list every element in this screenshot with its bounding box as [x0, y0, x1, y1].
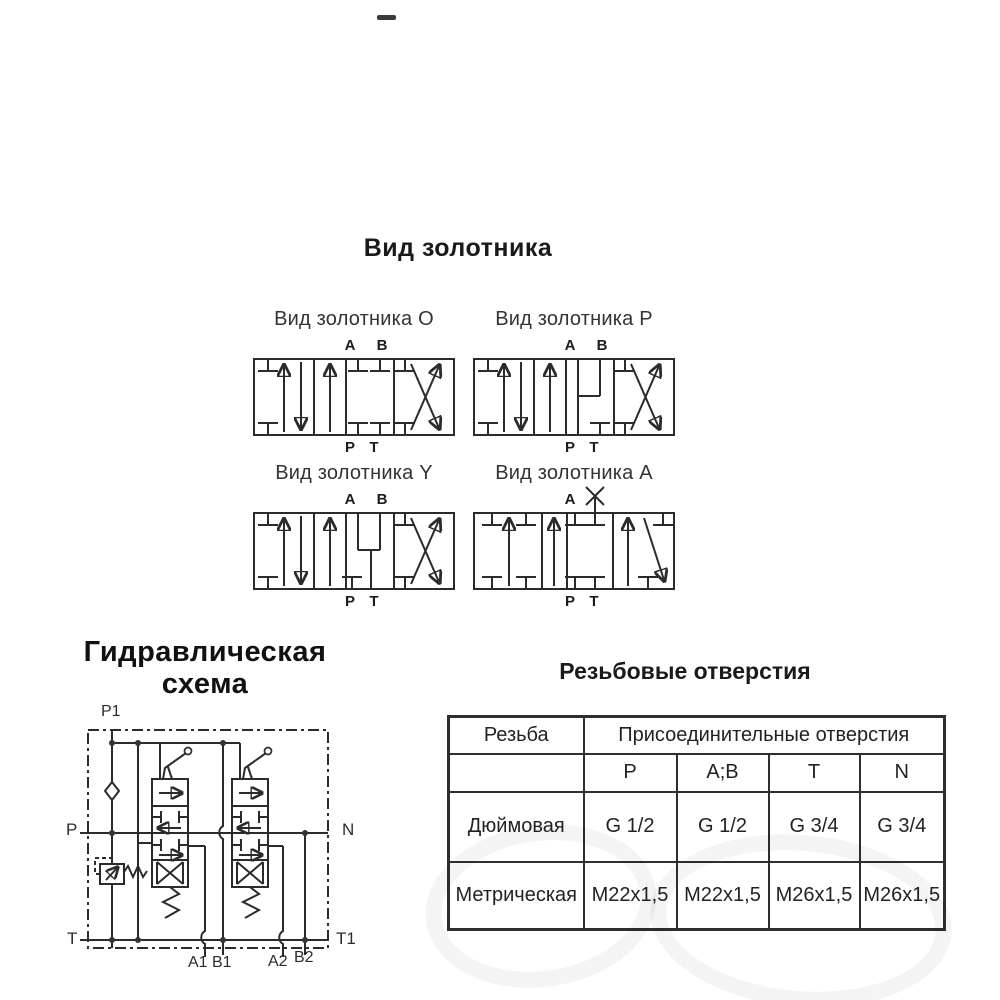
hydraulic-title-line1: Гидравлическая: [84, 636, 327, 668]
port-label-b: B: [597, 337, 608, 354]
spool-title-a: Вид золотника A: [443, 462, 705, 485]
port-label-t1: T1: [336, 929, 356, 949]
spool-block-a: Вид золотника A A P T: [473, 462, 675, 622]
spool-title-p: Вид золотника P: [443, 308, 705, 331]
col-header-thread: Резьба: [449, 717, 584, 754]
b1-line: [219, 743, 223, 955]
port-label-a: A: [345, 337, 356, 354]
y-center-icon: [342, 513, 380, 589]
enclosure-border: [88, 730, 328, 948]
spool-block-o: Вид золотника O A B P T: [253, 308, 455, 468]
table-row: Резьба Присоединительные отверстия: [449, 717, 945, 754]
col-header-ab: A;B: [677, 754, 769, 792]
page-top-dash-icon: [377, 15, 396, 20]
catalog-page: Вид золотника Вид золотника O A B P T Ви…: [0, 0, 1000, 1000]
bypass-line: [138, 743, 152, 940]
port-label-a1: A1: [188, 954, 208, 972]
spool-section-title: Вид золотника: [308, 234, 608, 263]
spool-symbol-p-svg: [473, 358, 675, 436]
port-label-b: B: [377, 337, 388, 354]
plugged-port-stem: [585, 496, 605, 525]
spool-symbol-a-svg: [473, 486, 675, 590]
port-label-t: T: [369, 439, 378, 456]
port-label-p1: P1: [101, 703, 121, 721]
spool-block-y: Вид золотника Y A B P T: [253, 462, 455, 622]
port-label-t: T: [67, 929, 77, 949]
port-label-b: B: [377, 491, 388, 508]
port-label-b2: B2: [294, 949, 314, 967]
hydraulic-section-title: Гидравлическая схема: [50, 636, 360, 701]
spring-icon: [163, 887, 179, 918]
port-label-t: T: [369, 593, 378, 610]
port-label-p: P: [565, 439, 575, 456]
relief-valve-arrow: [106, 868, 117, 880]
port-label-a2: A2: [268, 953, 288, 971]
port-label-a: A: [565, 337, 576, 354]
spool-symbol-o-svg: [253, 358, 455, 436]
port-label-p: P: [565, 593, 575, 610]
col-header-connection-holes: Присоединительные отверстия: [584, 717, 945, 754]
relief-pilot-line: [95, 858, 113, 874]
port-label-b1: B1: [212, 954, 232, 972]
port-label-n: N: [342, 820, 354, 840]
spool-symbol-y-svg: [253, 512, 455, 590]
col-header-p: P: [584, 754, 677, 792]
table-row: P A;B T N: [449, 754, 945, 792]
col-header-t: T: [769, 754, 860, 792]
lever-icon: [243, 753, 266, 779]
lever-icon: [163, 753, 186, 779]
spool-block-p: Вид золотника P A B P T: [473, 308, 675, 468]
spring-icon: [243, 887, 259, 918]
check-valve-icon: [105, 782, 119, 800]
hydraulic-title-line2: схема: [162, 668, 249, 700]
port-label-t: T: [589, 593, 598, 610]
p-center-icon: [578, 359, 610, 435]
valve-section-2: [232, 748, 272, 919]
valve-section-1: [152, 748, 192, 919]
relief-valve-spring: [124, 866, 147, 877]
col-header-n: N: [860, 754, 945, 792]
hydraulic-schematic-svg: [60, 700, 370, 980]
closed-center-icon: [348, 359, 390, 435]
thread-section-title: Резьбовые отверстия: [535, 658, 835, 685]
port-label-p: P: [345, 593, 355, 610]
blocked-port-icon: [258, 359, 278, 435]
port-label-p: P: [345, 439, 355, 456]
port-label-t: T: [589, 439, 598, 456]
port-label-p: P: [66, 820, 77, 840]
empty-cell: [449, 754, 584, 792]
port-label-a: A: [345, 491, 356, 508]
